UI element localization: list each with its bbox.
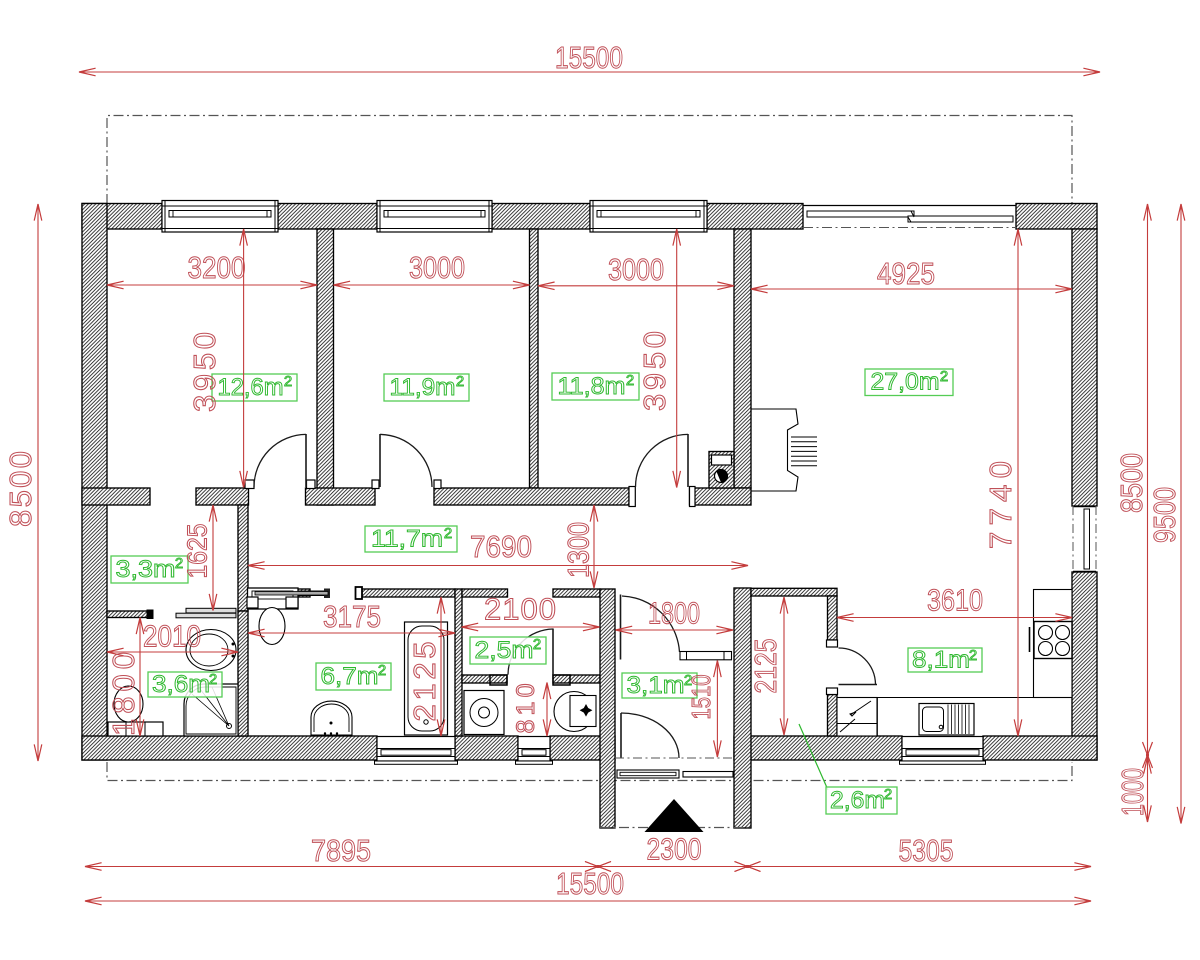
svg-text:27,0m: 27,0m xyxy=(871,369,940,396)
svg-text:2: 2 xyxy=(378,662,386,679)
svg-text:810: 810 xyxy=(512,684,540,734)
svg-text:15500: 15500 xyxy=(555,40,623,75)
svg-text:2125: 2125 xyxy=(748,639,783,694)
svg-text:3200: 3200 xyxy=(188,250,246,285)
svg-text:11,7m: 11,7m xyxy=(371,525,443,552)
svg-text:2,6m: 2,6m xyxy=(830,787,885,814)
svg-text:11,8m: 11,8m xyxy=(558,373,626,400)
svg-text:7690: 7690 xyxy=(470,529,532,564)
svg-text:2: 2 xyxy=(626,372,634,389)
svg-text:2: 2 xyxy=(444,525,452,542)
svg-text:15500: 15500 xyxy=(556,866,624,901)
svg-text:3,3m: 3,3m xyxy=(116,556,176,583)
svg-text:1300: 1300 xyxy=(562,522,595,578)
svg-text:2300: 2300 xyxy=(647,832,702,867)
svg-text:8,1m: 8,1m xyxy=(912,646,970,673)
svg-text:2: 2 xyxy=(940,368,948,385)
svg-text:1510: 1510 xyxy=(686,675,716,720)
svg-text:12,6m: 12,6m xyxy=(218,374,284,401)
svg-text:3175: 3175 xyxy=(323,599,381,634)
svg-text:2010: 2010 xyxy=(143,619,201,654)
svg-text:2: 2 xyxy=(209,671,217,688)
svg-text:2: 2 xyxy=(284,373,292,390)
svg-text:2100: 2100 xyxy=(484,592,556,627)
svg-text:7895: 7895 xyxy=(311,833,371,868)
svg-text:1800: 1800 xyxy=(648,596,700,631)
svg-text:9500: 9500 xyxy=(1147,487,1182,543)
svg-text:3000: 3000 xyxy=(409,250,465,285)
svg-text:3000: 3000 xyxy=(608,252,664,287)
svg-text:2: 2 xyxy=(884,786,892,803)
svg-text:2,5m: 2,5m xyxy=(475,637,534,664)
svg-text:4925: 4925 xyxy=(877,256,935,291)
svg-text:1625: 1625 xyxy=(181,524,212,579)
svg-text:2: 2 xyxy=(969,647,977,664)
svg-text:3,6m: 3,6m xyxy=(152,671,210,698)
svg-text:2: 2 xyxy=(533,636,541,653)
svg-text:5305: 5305 xyxy=(899,833,954,868)
svg-text:2: 2 xyxy=(456,373,464,390)
svg-text:6,7m: 6,7m xyxy=(321,663,379,690)
svg-text:11,9m: 11,9m xyxy=(390,374,456,401)
svg-text:3610: 3610 xyxy=(927,583,983,618)
svg-text:3,1m: 3,1m xyxy=(627,672,685,699)
svg-text:8500: 8500 xyxy=(1114,453,1149,513)
svg-text:1000: 1000 xyxy=(1115,768,1150,816)
